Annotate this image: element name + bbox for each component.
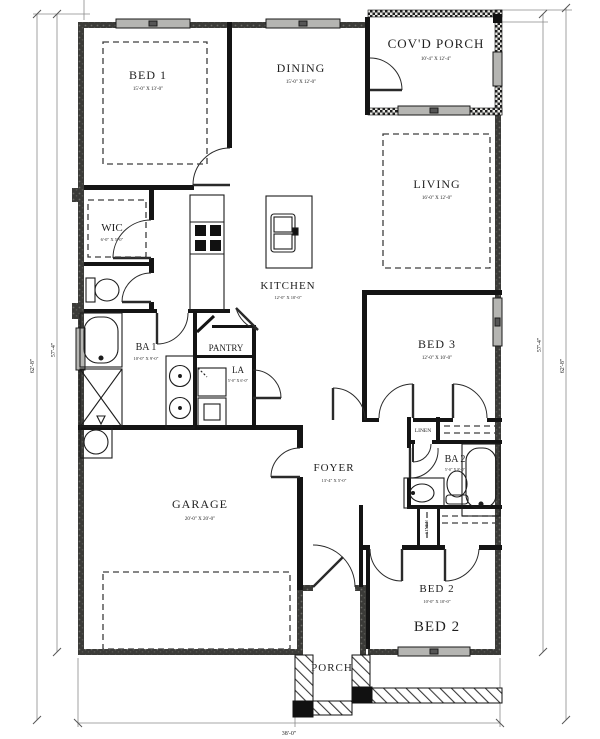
toilet	[86, 278, 119, 302]
ba2-label: BA 2	[445, 454, 466, 465]
dim-right-outer: 62'-8"	[560, 358, 566, 373]
living-ceiling-outline	[383, 134, 490, 268]
porch-post-right	[352, 687, 372, 703]
garage-dims: 20'-0" X 20'-0"	[185, 517, 215, 522]
dim-bottom: 38'-0"	[282, 731, 297, 737]
porch-column-right	[352, 655, 370, 687]
door-back-porch	[370, 58, 402, 90]
shower	[80, 369, 122, 427]
garage-label: GARAGE	[172, 497, 228, 511]
door-bed1	[193, 148, 230, 185]
dining-dims: 15'-0" X 12'-0"	[286, 80, 316, 85]
garage-door-outline	[103, 572, 290, 649]
foyer-label: FOYER	[313, 462, 354, 474]
la-dims: 5'-0" X 6'-0"	[228, 378, 249, 383]
covd-porch-label: COV'D PORCH	[388, 36, 485, 51]
porch-label: PORCH	[311, 662, 353, 674]
door-hall	[333, 388, 365, 420]
window	[266, 19, 340, 28]
room-labels: BED 1 15'-0" X 13'-0" DINING 15'-0" X 12…	[101, 36, 485, 674]
bed1-dims: 15'-0" X 13'-0"	[133, 87, 163, 92]
door-la	[253, 370, 281, 398]
ba2-dims: 5'-0" X 8'-0"	[445, 467, 466, 472]
kitchen-island	[266, 196, 312, 268]
door-linen	[413, 444, 431, 462]
kitchen-counter	[190, 195, 224, 310]
washer-dryer	[198, 368, 226, 426]
floor-plan-page: BED 1 15'-0" X 13'-0" DINING 15'-0" X 12…	[0, 0, 600, 739]
wic-label: WIC	[101, 222, 122, 234]
bed2-dims: 10'-0" X 10'-0"	[423, 599, 450, 604]
dim-right-inner: 57'-4"	[537, 337, 543, 352]
bed3-label: BED 3	[418, 337, 456, 351]
double-vanity	[166, 356, 194, 428]
bed2-label-large: BED 2	[414, 619, 460, 635]
bathtub-ba1	[80, 313, 122, 367]
dim-left-outer: 62'-8"	[30, 358, 36, 373]
hall-closet-label: LINEN	[424, 520, 429, 534]
floor-plan-drawing: BED 1 15'-0" X 13'-0" DINING 15'-0" X 12…	[0, 0, 600, 739]
bed3-dims: 12'-0" X 10'-0"	[422, 356, 452, 361]
foyer-dims: 13'-4" X 5'-0"	[321, 478, 346, 483]
pantry-angled-wall	[197, 316, 214, 332]
window	[493, 52, 502, 86]
bed2-label: BED 2	[419, 583, 454, 595]
door-bed2-closet	[445, 549, 479, 581]
door-toilet-room	[122, 273, 151, 302]
wic-dims: 6'-0" X 5'-0"	[101, 237, 124, 242]
linen-label: LINEN	[415, 428, 432, 434]
covd-porch-dims: 10'-4" X 12'-4"	[421, 57, 451, 62]
la-label: LA	[232, 365, 244, 375]
bed1-ceiling-outline	[103, 42, 207, 164]
door-garage	[271, 448, 300, 477]
window	[398, 106, 470, 115]
side-stoop	[372, 688, 502, 703]
door-ba1	[157, 313, 188, 344]
porch-post-left	[293, 701, 313, 717]
door-ba2	[410, 448, 438, 478]
door-front-entry	[313, 545, 355, 587]
living-label: LIVING	[413, 177, 460, 191]
ba1-dims: 10'-0" X 9'-0"	[133, 356, 158, 361]
dining-label: DINING	[277, 61, 326, 75]
door-bed3-closet	[453, 384, 487, 418]
ba1-label: BA 1	[136, 342, 157, 353]
pantry-label: PANTRY	[209, 343, 244, 353]
door-bed3-entry	[379, 384, 413, 418]
door-bed2-entry	[370, 549, 402, 581]
dim-left-inner: 57'-4"	[51, 342, 57, 357]
porch-step	[313, 701, 352, 715]
window	[116, 19, 190, 28]
ba2-toilet	[446, 471, 468, 504]
water-heater	[80, 426, 112, 458]
kitchen-label: KITCHEN	[260, 280, 315, 292]
interior-walls	[78, 22, 502, 649]
window	[398, 647, 470, 656]
window	[493, 298, 502, 346]
kitchen-dims: 12'-0" X 10'-0"	[274, 295, 301, 300]
living-dims: 16'-0" X 12'-0"	[422, 196, 452, 201]
cooktop	[195, 225, 221, 251]
bed1-label: BED 1	[129, 68, 167, 82]
